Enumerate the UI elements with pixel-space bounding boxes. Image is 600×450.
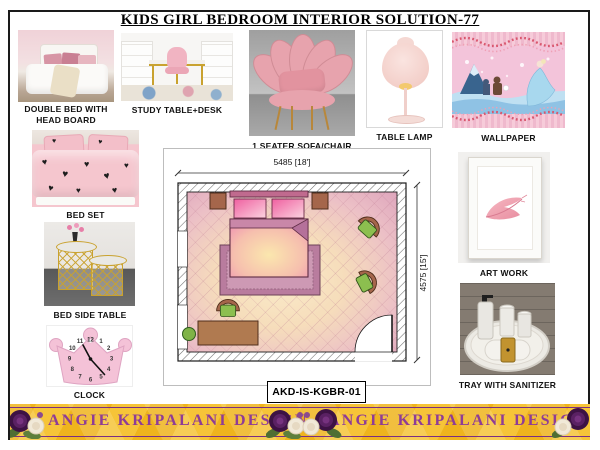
side-table-top-shape xyxy=(89,255,127,266)
sofa-leg-shape xyxy=(323,106,330,130)
floor-plan-drawing: 5485 [18'] 4575 [15'] xyxy=(164,149,430,385)
art-mat-shape xyxy=(477,166,533,250)
product-label-bed-set: BED SET xyxy=(32,210,139,221)
desk-symbol xyxy=(198,321,258,345)
product-photo-wallpaper xyxy=(452,32,565,128)
product-photo-study-table xyxy=(121,33,233,101)
lamp-base-shape xyxy=(388,115,425,124)
svg-text:11: 11 xyxy=(77,339,84,345)
art-frame-shape xyxy=(468,157,542,259)
sofa-leg-shape xyxy=(311,106,313,130)
heart-icon: ♥ xyxy=(111,186,118,196)
svg-text:1: 1 xyxy=(99,339,103,345)
product-label-clock: CLOCK xyxy=(46,390,133,401)
side-table-top-shape xyxy=(56,241,97,253)
window-symbol xyxy=(177,231,187,267)
nightstand-symbol xyxy=(312,193,328,209)
product-photo-clock: 12 1 2 3 4 5 6 7 8 9 10 11 xyxy=(46,325,133,387)
flower-bouquet-icon xyxy=(552,405,590,439)
sofa-leg-shape xyxy=(275,106,282,130)
heart-icon: ♥ xyxy=(52,138,56,145)
desk-chair-pole-shape xyxy=(176,74,178,84)
product-label-double-bed: DOUBLE BED WITH HEAD BOARD xyxy=(16,104,116,126)
nightstand-symbol xyxy=(210,193,226,209)
flower-shape xyxy=(67,225,72,230)
page-title: KIDS GIRL BEDROOM INTERIOR SOLUTION-77 xyxy=(0,12,600,29)
lamp-stem-shape xyxy=(404,88,407,116)
drawer-unit-shape xyxy=(201,41,233,89)
dimension-top: 5485 [18'] xyxy=(175,157,409,176)
product-label-bed-side-table: BED SIDE TABLE xyxy=(30,310,150,321)
brand-banner: ANGIE KRIPALANI DESIGN ANGIE KRIPALANI D… xyxy=(10,404,590,440)
svg-text:4575 [15']: 4575 [15'] xyxy=(418,254,428,291)
flower-shape xyxy=(74,223,79,228)
design-code: AKD-IS-KGBR-01 xyxy=(267,381,366,403)
product-photo-sofa-chair xyxy=(249,30,355,136)
window-symbol xyxy=(177,305,187,349)
svg-text:5485 [18']: 5485 [18'] xyxy=(273,157,310,167)
heart-icon: ♥ xyxy=(124,162,129,170)
throw-blanket-shape xyxy=(50,64,81,98)
desk-chair-seat-shape xyxy=(165,67,189,74)
flower-shape xyxy=(79,227,84,232)
sofa-leg-shape xyxy=(291,106,293,130)
product-photo-tray xyxy=(460,283,555,375)
heart-icon: ♥ xyxy=(84,160,89,169)
floor-plan: 5485 [18'] 4575 [15'] xyxy=(163,148,431,386)
product-photo-table-lamp xyxy=(366,30,443,128)
product-photo-double-bed xyxy=(18,30,114,102)
bedset-base-shape xyxy=(36,197,135,205)
product-photo-bed-set: ♥ ♥ ♥ ♥ ♥ ♥ ♥ ♥ ♥ ♥ xyxy=(32,130,139,207)
product-label-wallpaper: WALLPAPER xyxy=(452,133,565,144)
flower-bouquet-icon xyxy=(300,405,342,439)
product-label-tray: TRAY WITH SANITIZER xyxy=(445,380,570,391)
svg-text:12: 12 xyxy=(87,338,94,344)
product-photo-bed-side-table xyxy=(44,222,135,306)
brand-text-right: ANGIE KRIPALANI DESIGN xyxy=(328,412,552,430)
feather-art xyxy=(478,167,532,249)
product-label-study-table: STUDY TABLE+DESK xyxy=(121,105,233,116)
flower-bouquet-icon xyxy=(10,405,48,439)
plant-symbol xyxy=(183,328,196,341)
heart-icon: ♥ xyxy=(61,170,68,181)
svg-text:10: 10 xyxy=(69,346,76,352)
frozen-scene xyxy=(452,32,565,128)
crown-clock: 12 1 2 3 4 5 6 7 8 9 10 11 xyxy=(47,326,133,387)
dimension-right: 4575 [15'] xyxy=(414,182,428,363)
desk-chair-shape xyxy=(167,47,187,69)
mood-board-page: KIDS GIRL BEDROOM INTERIOR SOLUTION-77 D… xyxy=(0,0,600,450)
tray-set xyxy=(460,283,555,375)
product-label-art-work: ART WORK xyxy=(458,268,550,279)
rug-shape xyxy=(121,85,233,101)
brand-text-left: ANGIE KRIPALANI DESIGN xyxy=(48,412,272,430)
product-label-table-lamp: TABLE LAMP xyxy=(366,132,443,143)
product-photo-art-work xyxy=(458,152,550,263)
heart-icon: ♥ xyxy=(76,187,81,195)
